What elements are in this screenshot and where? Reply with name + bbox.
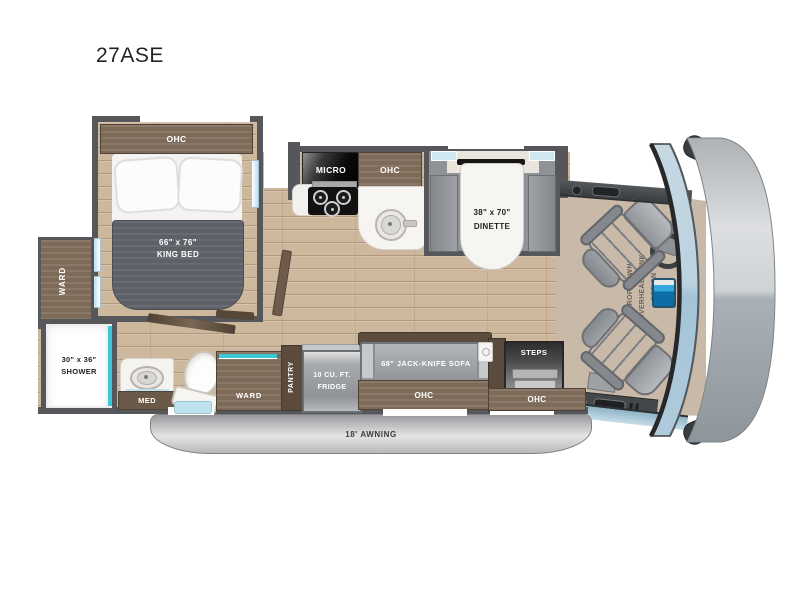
faucet-icon (403, 220, 417, 227)
shower-surround-accent (108, 326, 112, 406)
pillow (177, 156, 244, 213)
king-bed-name-label: KING BED (113, 249, 243, 261)
hall-ward: WARD (216, 351, 282, 411)
pillow (113, 156, 181, 214)
windshield-glass (651, 144, 699, 436)
bedroom-ward: WARD (38, 237, 94, 329)
cooktop (308, 187, 358, 215)
fridge: 10 CU. FT. FRIDGE (302, 350, 362, 413)
entry-ohc: OHC (488, 388, 586, 411)
dinette-size-label: 38" x 70" (461, 206, 523, 220)
king-bed-blanket: 66" x 76" KING BED (112, 220, 244, 310)
jack-knife-sofa: 68" JACK-KNIFE SOFA (360, 342, 492, 384)
bedroom-window (251, 160, 259, 208)
bedroom-ohc: OHC (100, 124, 253, 154)
steps-label: STEPS (506, 348, 562, 357)
med-label: MED (138, 396, 156, 405)
front-cap (575, 118, 785, 463)
bath-sink-drain (144, 375, 148, 379)
dinette-bench (528, 175, 556, 252)
sofa-ohc-label: OHC (415, 391, 434, 400)
dinette-table: 38" x 70" DINETTE (460, 163, 524, 270)
king-bed-size-label: 66" x 76" (113, 237, 243, 249)
shower-size-label: 30" x 36" (62, 354, 97, 366)
kitchen-ohc: OHC (358, 152, 422, 188)
ward-counter-accent (219, 354, 277, 359)
kitchen-sink-drain (388, 222, 392, 226)
bedroom-ward-label: WARD (52, 241, 72, 321)
kitchen-counter (358, 186, 426, 250)
pantry-label: PANTRY (281, 332, 301, 422)
shower-name-label: SHOWER (61, 366, 97, 378)
entry-appliance (478, 342, 493, 362)
awning: 18' AWNING (150, 414, 592, 454)
wall-gap (383, 409, 467, 416)
bath-vanity-counter (120, 358, 174, 394)
bedroom-window (93, 238, 101, 272)
sofa-armrest (362, 344, 375, 378)
bedroom-ohc-label: OHC (166, 134, 186, 144)
page-title: 27ASE (96, 44, 164, 68)
step-tread (512, 369, 558, 379)
dinette-window (431, 151, 457, 161)
fridge-name-label: FRIDGE (318, 382, 347, 393)
bedroom-slide: OHC 66" x 76" KING BED (92, 116, 263, 322)
kitchen-ohc-label: OHC (380, 165, 400, 175)
rv-floorplan-27ase: 27ASE DROP-DOWN OVERHEAD BUNK OPTION (0, 0, 800, 600)
entry-ohc-label: OHC (528, 395, 547, 404)
dinette-bench (430, 175, 458, 252)
sofa-ohc: OHC (358, 380, 490, 410)
front-nose (687, 138, 775, 442)
slide-window-gap (140, 116, 250, 122)
king-bed-pillows (112, 154, 242, 222)
dinette-slide: 39" TV 38" x 70" DINETTE (424, 146, 560, 256)
burner-icon (336, 190, 351, 205)
slide-window-gap (448, 144, 524, 149)
dinette-window (529, 151, 555, 161)
entry-steps: STEPS (504, 341, 564, 395)
sofa-label: 68" JACK-KNIFE SOFA (381, 359, 471, 368)
shower: 30" x 36" SHOWER (41, 319, 117, 413)
burner-icon (324, 201, 340, 217)
bedroom-window (93, 276, 101, 308)
bath-mat (174, 401, 212, 414)
awning-label: 18' AWNING (345, 430, 397, 439)
hall-ward-label: WARD (217, 391, 281, 400)
fridge-size-label: 10 CU. FT. (313, 370, 350, 381)
dinette-name-label: DINETTE (461, 220, 523, 234)
entry-door-gap (264, 146, 288, 188)
micro-label: MICRO (316, 165, 346, 175)
